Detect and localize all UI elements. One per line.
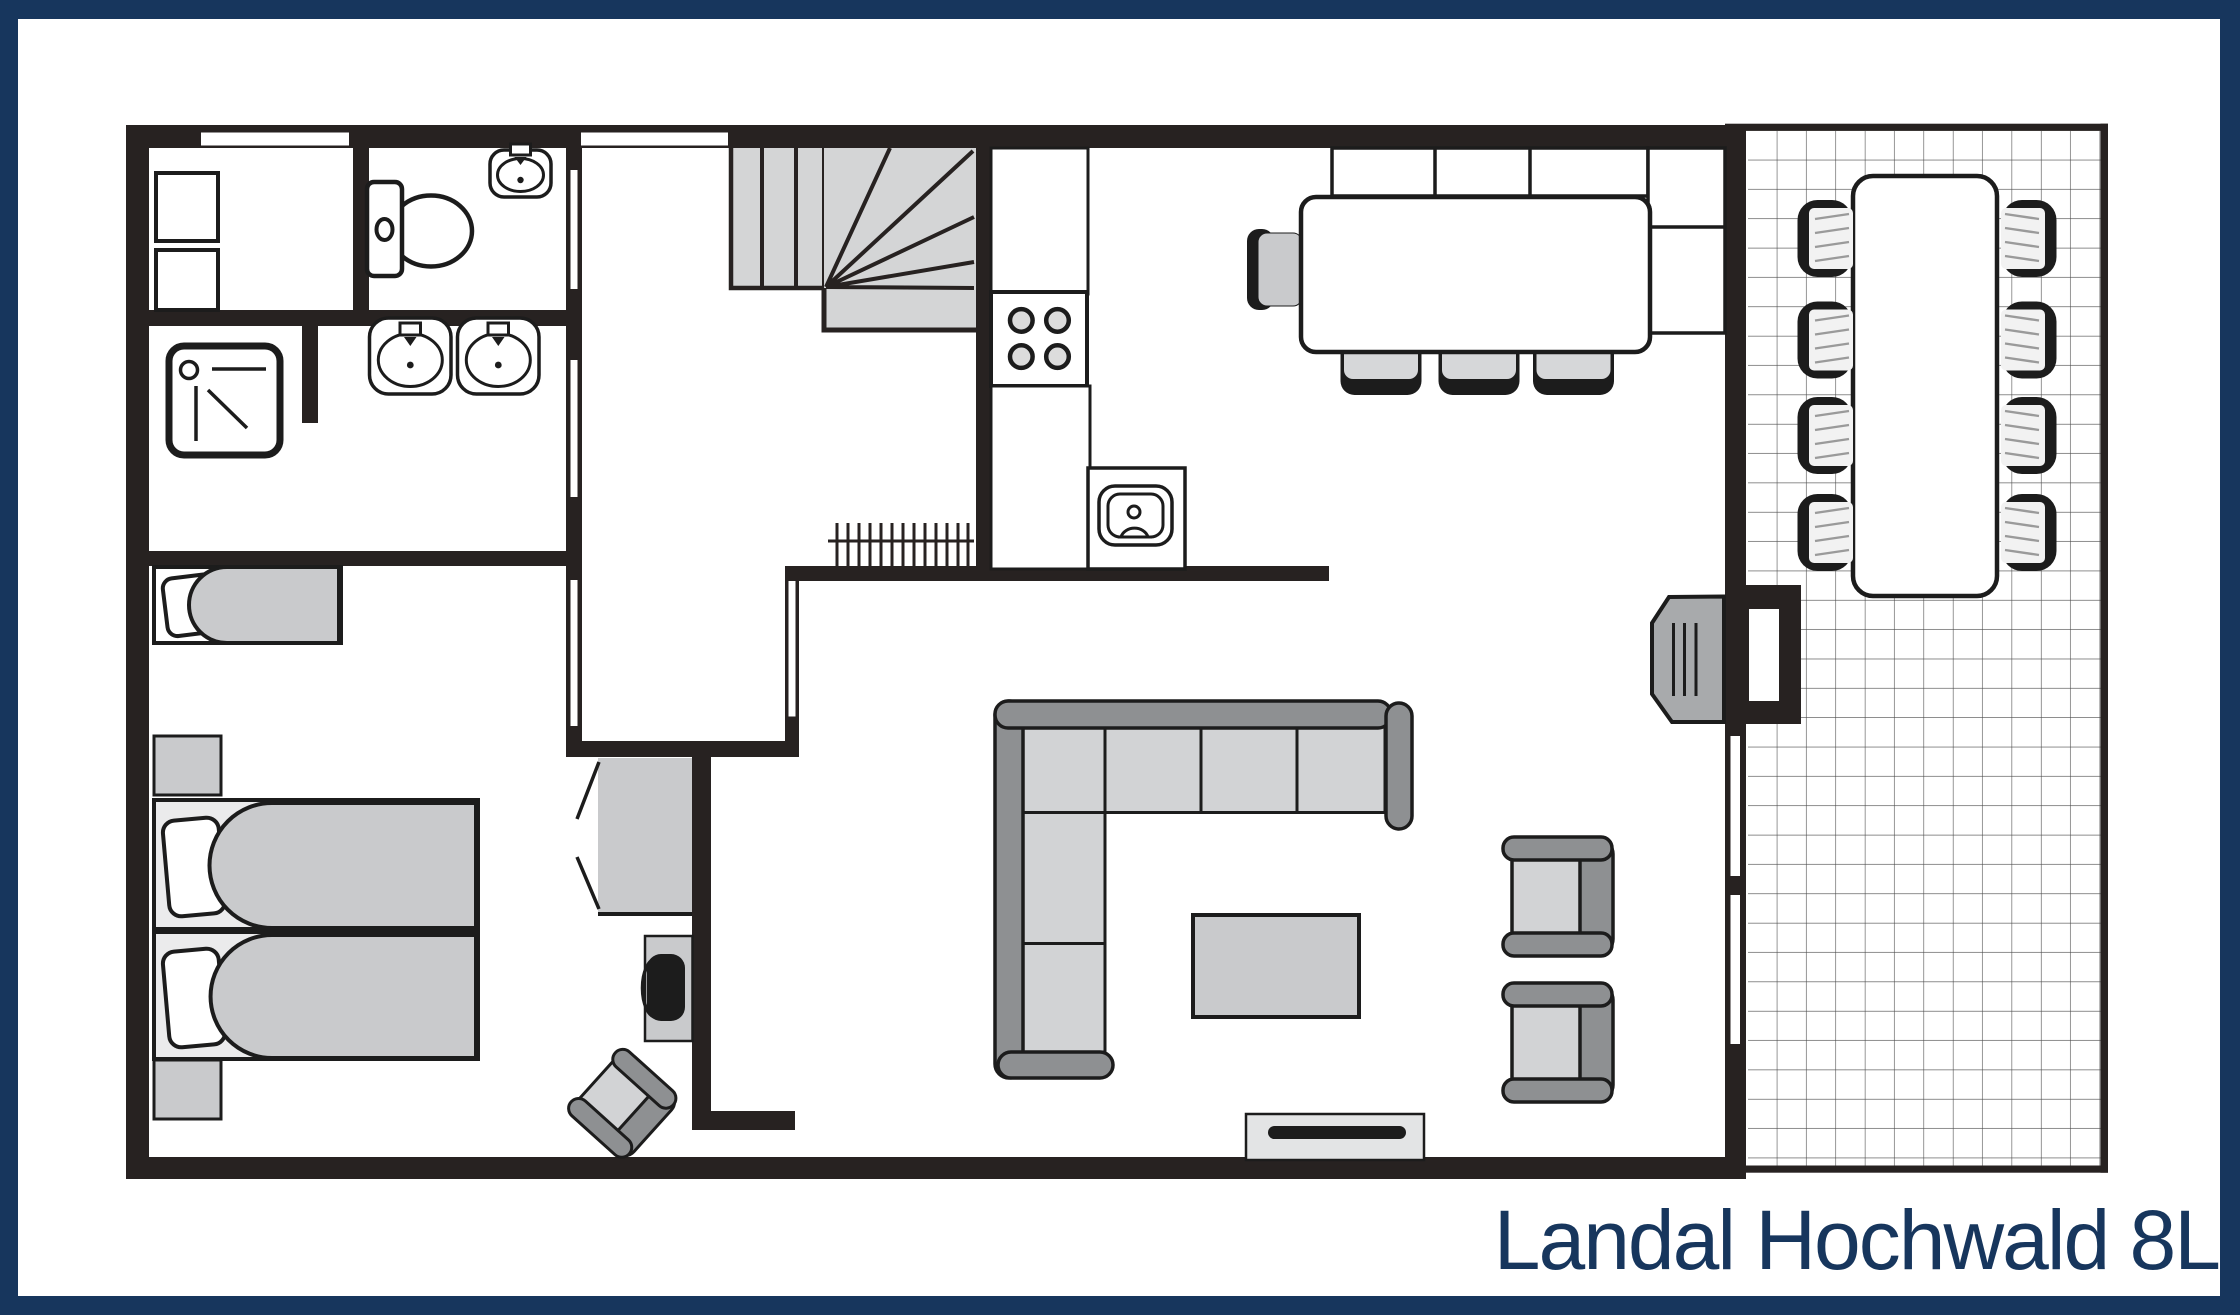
svg-text:Landal Hochwald 8L: Landal Hochwald 8L xyxy=(1494,1193,2219,1287)
